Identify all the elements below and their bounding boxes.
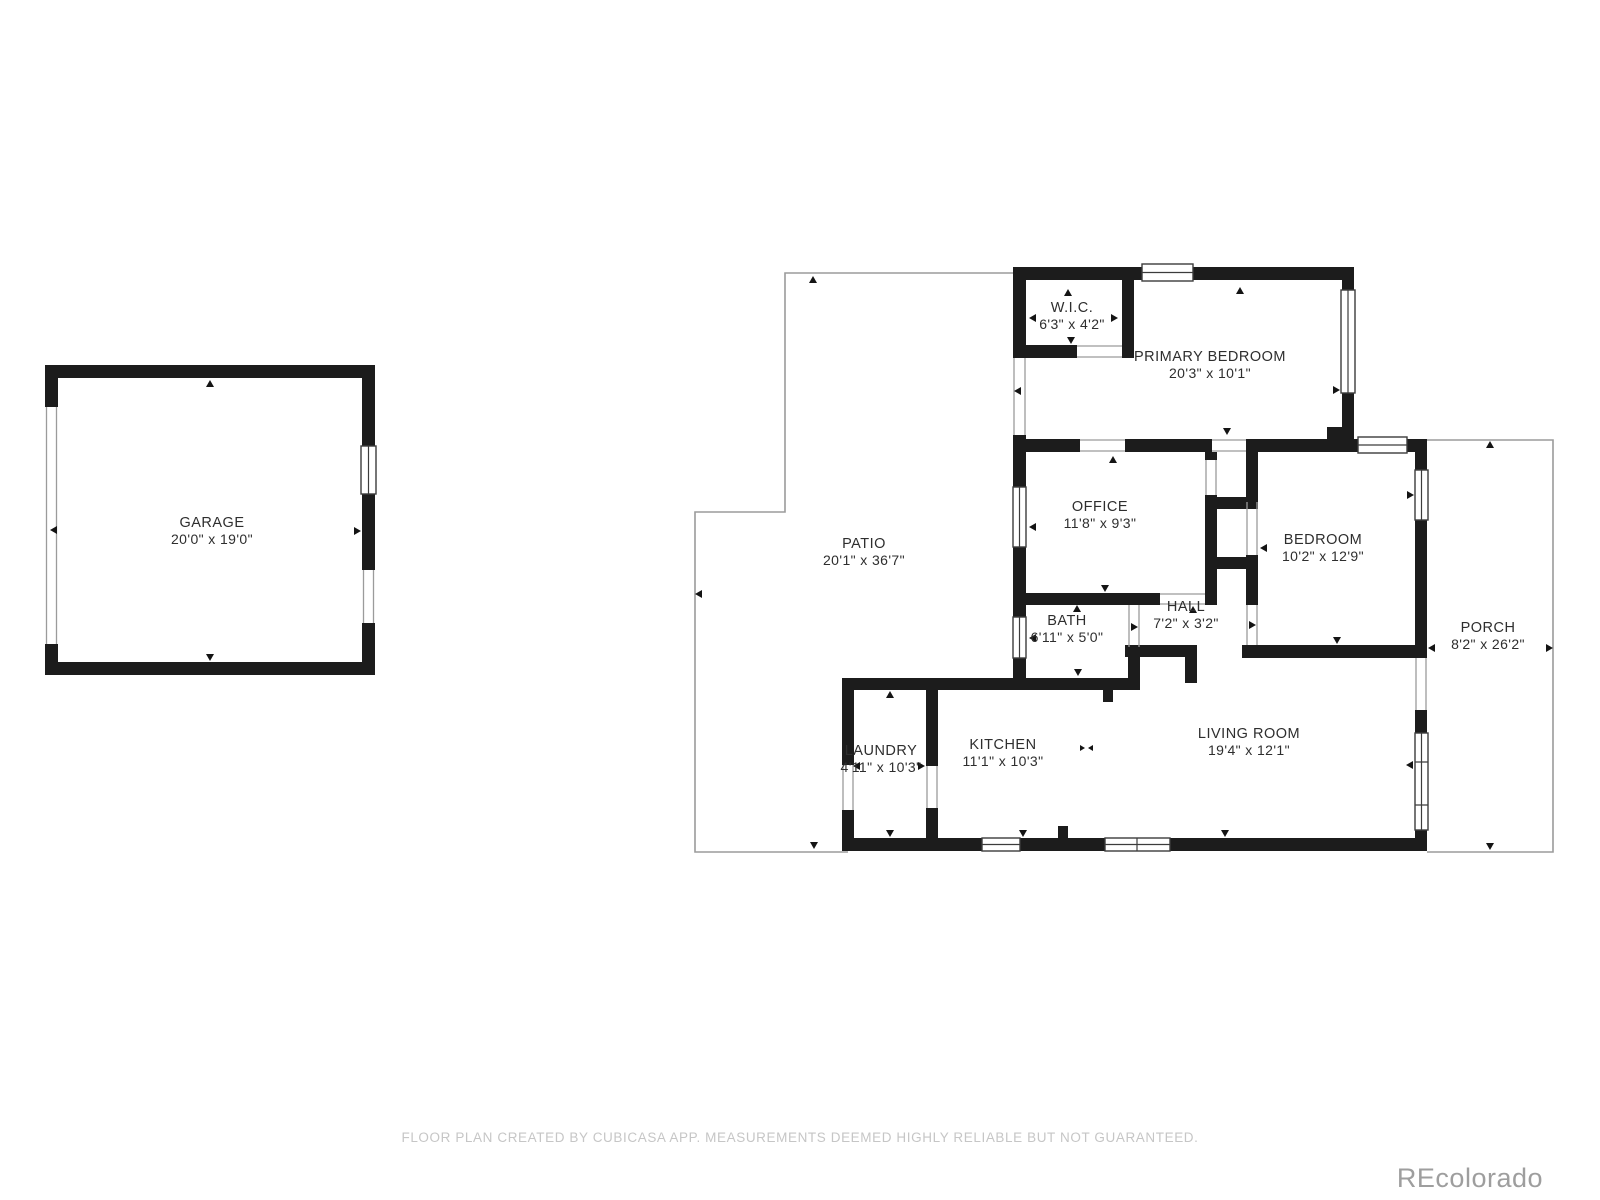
measure-arrow-left	[1428, 644, 1435, 652]
measure-arrow-right	[1407, 491, 1414, 499]
window-office-left	[1013, 487, 1026, 547]
measure-arrow-left	[1088, 745, 1093, 751]
bedroom-dims: 10'2" x 12'9"	[1282, 548, 1364, 564]
window-bath-left	[1013, 617, 1026, 658]
laundry-dims: 4'11" x 10'3"	[841, 759, 922, 775]
bedroom-label: BEDROOM	[1284, 532, 1362, 548]
porch-door-opening	[1416, 658, 1426, 710]
measure-arrow-left	[50, 526, 57, 534]
measure-arrow-up	[886, 691, 894, 698]
measure-arrow-right	[1546, 644, 1553, 652]
measure-arrow-down	[206, 654, 214, 661]
measure-arrow-down	[1067, 337, 1075, 344]
measure-arrow-down	[886, 830, 894, 837]
window-living-bottom	[1105, 838, 1170, 851]
primary-bedroom-dims: 20'3" x 10'1"	[1169, 365, 1251, 381]
hall-label: HALL	[1167, 599, 1205, 615]
window-primary-top	[1142, 264, 1193, 281]
wic-label: W.I.C.	[1051, 300, 1093, 316]
measure-arrow-down	[810, 842, 818, 849]
wic-dims: 6'3" x 4'2"	[1039, 316, 1105, 332]
measure-arrow-right	[1080, 745, 1085, 751]
window-bedroom-top	[1358, 437, 1407, 453]
measure-arrow-down	[1223, 428, 1231, 435]
measure-arrow-up	[1073, 605, 1081, 612]
office-label: OFFICE	[1072, 499, 1128, 515]
measure-arrow-right	[1131, 623, 1138, 631]
measure-arrow-down	[1101, 585, 1109, 592]
measure-arrow-right	[1111, 314, 1118, 322]
garage-label: GARAGE	[179, 515, 244, 531]
measure-arrow-down	[1486, 843, 1494, 850]
garage: GARAGE 20'0" x 19'0"	[45, 365, 376, 675]
measure-arrow-right	[1333, 386, 1340, 394]
porch: PORCH 8'2" x 26'2"	[1427, 440, 1553, 852]
measure-arrow-left	[1029, 523, 1036, 531]
window-kitchen-bottom	[982, 838, 1020, 851]
porch-label: PORCH	[1461, 620, 1516, 636]
measure-arrow-up	[1064, 289, 1072, 296]
disclaimer-text: FLOOR PLAN CREATED BY CUBICASA APP. MEAS…	[401, 1130, 1198, 1145]
patio-dims: 20'1" x 36'7"	[823, 552, 905, 568]
measure-arrow-up	[206, 380, 214, 387]
garage-door-opening-right	[364, 570, 374, 623]
measure-arrow-left	[1029, 314, 1036, 322]
kitchen-dims: 11'1" x 10'3"	[963, 753, 1044, 769]
recolorado-watermark: REcolorado	[1397, 1163, 1543, 1193]
office-dims: 11'8" x 9'3"	[1064, 515, 1137, 531]
measure-arrow-down	[1333, 637, 1341, 644]
patio-slider-opening	[1014, 358, 1025, 435]
primary-bedroom-label: PRIMARY BEDROOM	[1134, 349, 1286, 365]
measure-arrow-left	[695, 590, 702, 598]
porch-dims: 8'2" x 26'2"	[1451, 636, 1525, 652]
measure-arrow-down	[1074, 669, 1082, 676]
bath-label: BATH	[1047, 613, 1087, 629]
measure-arrow-down	[1221, 830, 1229, 837]
patio-label: PATIO	[842, 536, 886, 552]
window-bedroom-right	[1415, 470, 1428, 520]
bath-dims: 6'11" x 5'0"	[1031, 629, 1104, 645]
house: W.I.C. 6'3" x 4'2" PRIMARY BEDROOM 20'3"…	[841, 264, 1428, 851]
measure-arrow-up	[1486, 441, 1494, 448]
garage-door-opening-left	[47, 407, 57, 644]
measure-arrow-up	[809, 276, 817, 283]
kitchen-label: KITCHEN	[969, 737, 1036, 753]
living-room-dims: 19'4" x 12'1"	[1208, 742, 1290, 758]
window-primary-right	[1341, 290, 1355, 393]
laundry-label: LAUNDRY	[845, 743, 918, 759]
wic-door-opening	[1077, 346, 1122, 357]
garage-window	[361, 446, 376, 494]
measure-arrow-left	[1014, 387, 1021, 395]
closet-door-right	[1247, 502, 1257, 555]
measure-arrow-down	[1019, 830, 1027, 837]
window-living-right	[1415, 733, 1428, 830]
measure-arrow-right	[354, 527, 361, 535]
living-room-label: LIVING ROOM	[1198, 726, 1300, 742]
laundry-door-right	[927, 766, 937, 808]
primary-bedroom-opening-a	[1080, 440, 1125, 451]
floor-plan-canvas: GARAGE 20'0" x 19'0" PATIO 20'1" x 36'7"…	[0, 0, 1600, 1200]
measure-arrow-right	[1249, 621, 1256, 629]
closet-door-left	[1206, 460, 1216, 495]
garage-dims: 20'0" x 19'0"	[171, 531, 253, 547]
primary-bedroom-opening-b	[1212, 440, 1246, 451]
measure-arrow-left	[1406, 761, 1413, 769]
hall-dims: 7'2" x 3'2"	[1153, 615, 1219, 631]
measure-arrow-left	[1260, 544, 1267, 552]
measure-arrow-up	[1236, 287, 1244, 294]
measure-arrow-up	[1109, 456, 1117, 463]
